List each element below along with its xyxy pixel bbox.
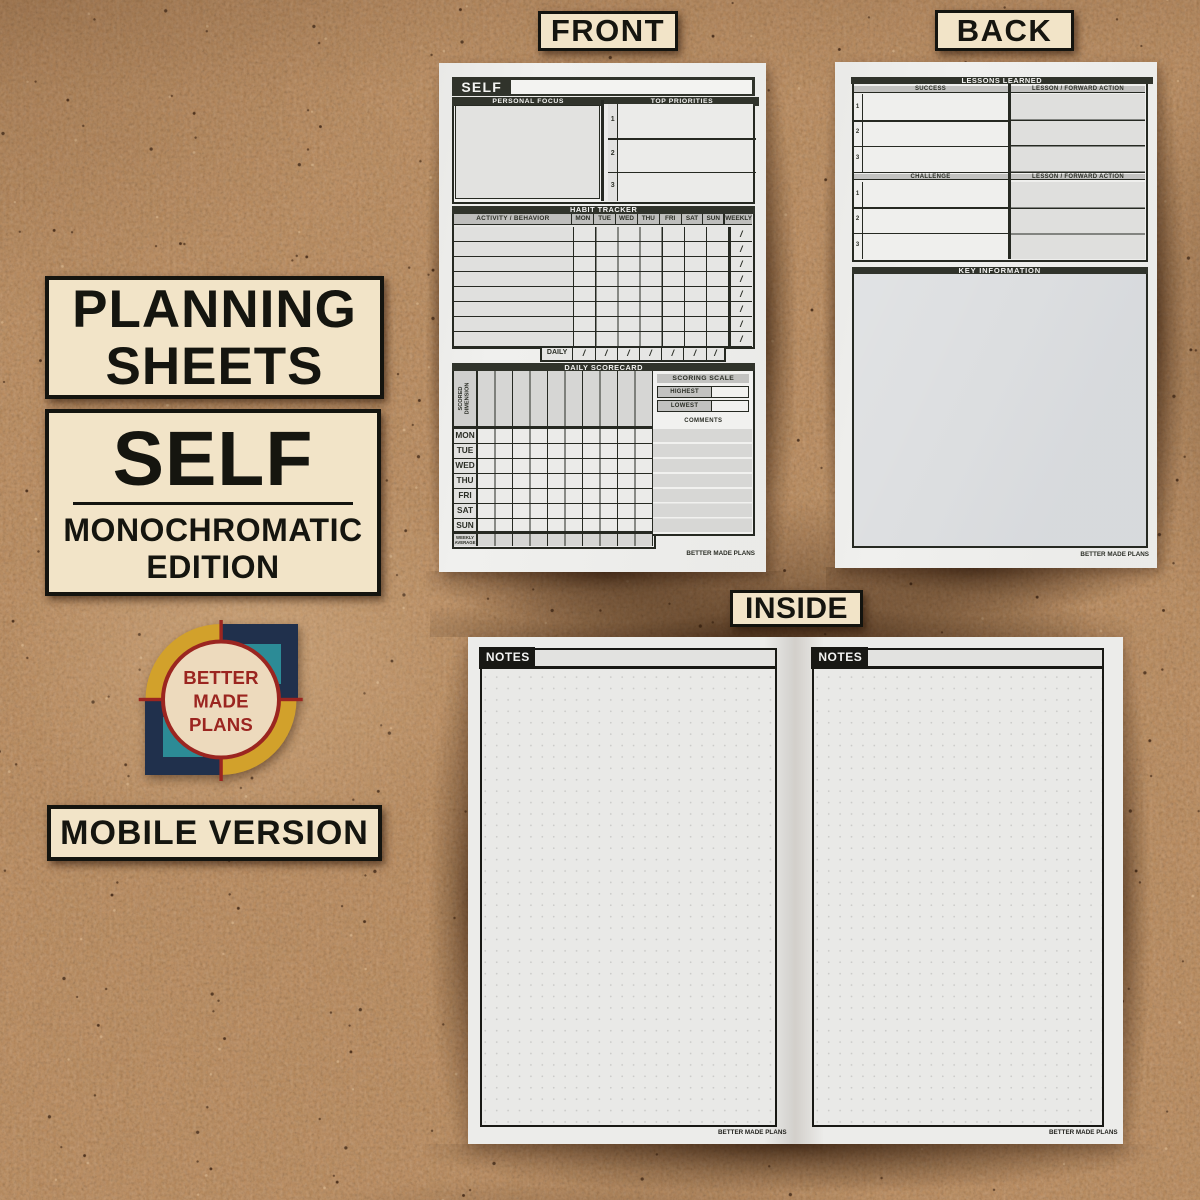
svg-text:PLANS: PLANS bbox=[189, 714, 253, 735]
svg-text:SCORED: SCORED bbox=[458, 387, 464, 411]
svg-text:BETTER: BETTER bbox=[183, 667, 259, 688]
svg-text:DIMENSION: DIMENSION bbox=[465, 383, 471, 415]
svg-text:MADE: MADE bbox=[193, 691, 249, 712]
